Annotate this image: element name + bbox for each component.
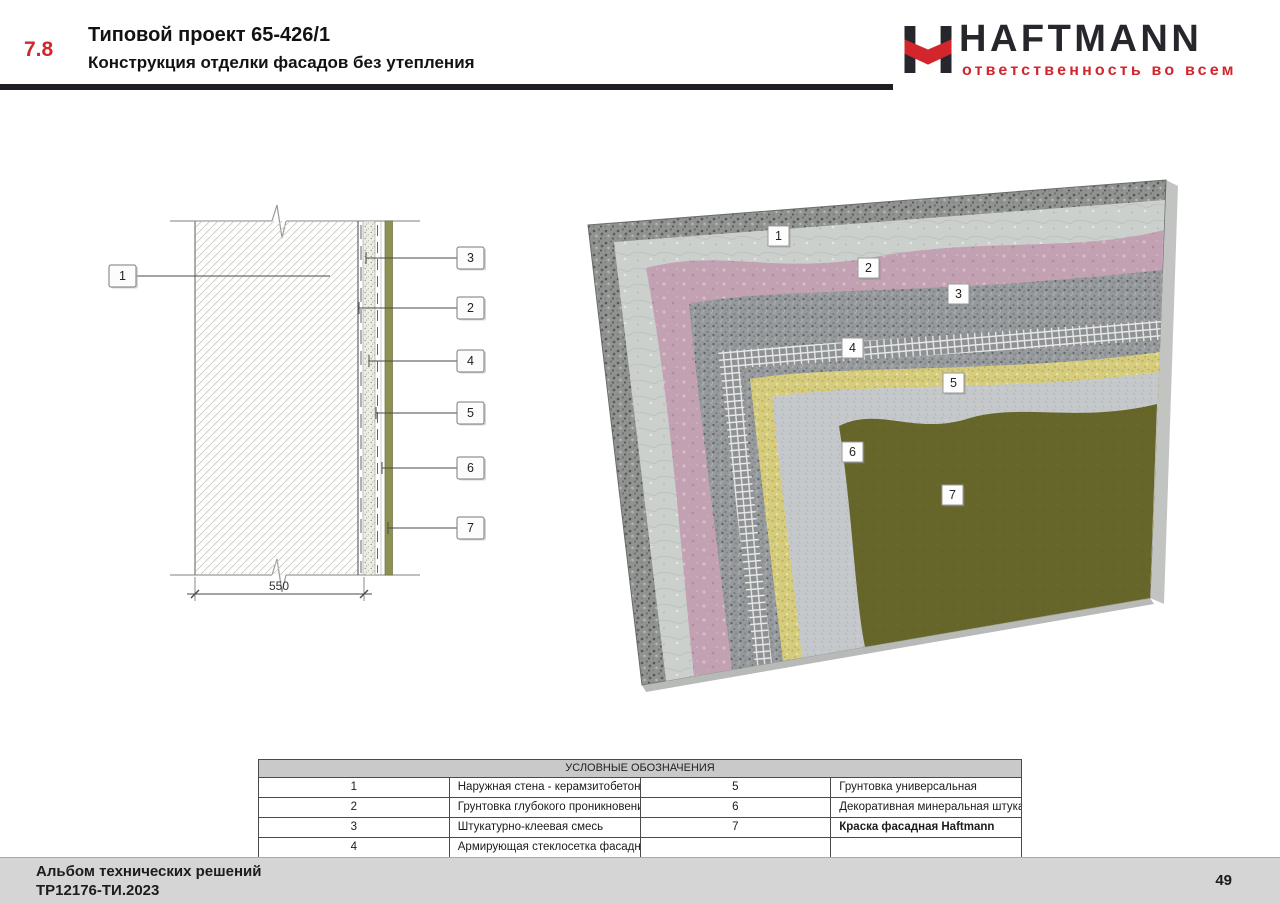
section-number: 7.8 <box>24 38 53 62</box>
legend-desc: Грунтовка универсальная <box>831 778 1022 798</box>
callout-4: 4 <box>457 350 486 374</box>
table-row: 2 Грунтовка глубокого проникновения / Ак… <box>259 798 1022 818</box>
legend-num: 3 <box>259 818 450 838</box>
callout-3d-1: 1 <box>768 226 791 248</box>
svg-text:4: 4 <box>467 354 474 368</box>
callout-3d-6: 6 <box>842 442 865 464</box>
table-row: 1 Наружная стена - керамзитобетонные пан… <box>259 778 1022 798</box>
svg-text:1: 1 <box>119 269 126 283</box>
legend-num <box>640 838 831 858</box>
footer-album-title: Альбом технических решений <box>36 863 261 880</box>
svg-text:5: 5 <box>950 376 957 390</box>
legend-desc-brand: Краска фасадная Haftmann <box>831 818 1022 838</box>
svg-text:7: 7 <box>949 488 956 502</box>
table-row: 4 Армирующая стеклосетка фасадная <box>259 838 1022 858</box>
svg-text:2: 2 <box>865 261 872 275</box>
page-title: Типовой проект 65-426/1 <box>88 24 330 47</box>
callout-7: 7 <box>457 517 486 541</box>
page-number: 49 <box>1215 872 1232 889</box>
legend-desc: Наружная стена - керамзитобетонные панел… <box>449 778 640 798</box>
svg-text:6: 6 <box>849 445 856 459</box>
page-footer: Альбом технических решений ТР12176-ТИ.20… <box>0 857 1280 904</box>
callout-5: 5 <box>457 402 486 426</box>
svg-text:3: 3 <box>467 251 474 265</box>
wall-hatch-area <box>195 221 358 575</box>
logo-tagline: ответственность во всем <box>962 62 1237 80</box>
legend-num: 1 <box>259 778 450 798</box>
legend-num: 5 <box>640 778 831 798</box>
svg-text:4: 4 <box>849 341 856 355</box>
svg-text:1: 1 <box>775 229 782 243</box>
legend-desc: Штукатурно-клеевая смесь <box>449 818 640 838</box>
legend-desc: Армирующая стеклосетка фасадная <box>449 838 640 858</box>
legend-desc: Декоративная минеральная штукатурка <box>831 798 1022 818</box>
callout-3d-3: 3 <box>948 284 971 306</box>
svg-text:7: 7 <box>467 521 474 535</box>
logo-brand-text: HAFTMANN <box>959 18 1202 61</box>
dimension-label: 550 <box>269 579 289 593</box>
page-subtitle: Конструкция отделки фасадов без утеплени… <box>88 53 475 73</box>
callout-6: 6 <box>457 457 486 481</box>
svg-text:2: 2 <box>467 301 474 315</box>
legend-num: 6 <box>640 798 831 818</box>
svg-text:5: 5 <box>467 406 474 420</box>
legend-table: УСЛОВНЫЕ ОБОЗНАЧЕНИЯ 1 Наружная стена - … <box>258 759 1022 858</box>
dimension-550: 550 <box>187 577 372 601</box>
legend-num: 7 <box>640 818 831 838</box>
paint-strip <box>385 221 393 575</box>
header-rule <box>0 84 893 90</box>
callout-3d-7: 7 <box>942 485 965 507</box>
legend-desc <box>831 838 1022 858</box>
callout-3d-2: 2 <box>858 258 881 280</box>
facade-layers-render: 1 2 3 4 5 <box>580 168 1190 703</box>
legend-header-row: УСЛОВНЫЕ ОБОЗНАЧЕНИЯ <box>259 760 1022 778</box>
callout-3d-4: 4 <box>842 338 865 360</box>
legend-num: 2 <box>259 798 450 818</box>
callout-2: 2 <box>457 297 486 321</box>
table-row: 3 Штукатурно-клеевая смесь 7 Краска фаса… <box>259 818 1022 838</box>
callout-1: 1 <box>109 265 138 289</box>
haftmann-h-logo-icon <box>904 26 952 73</box>
callout-3d-5: 5 <box>943 373 966 395</box>
svg-text:3: 3 <box>955 287 962 301</box>
legend-title: УСЛОВНЫЕ ОБОЗНАЧЕНИЯ <box>259 760 1022 778</box>
svg-text:6: 6 <box>467 461 474 475</box>
legend-num: 4 <box>259 838 450 858</box>
album-page: 7.8 Типовой проект 65-426/1 Конструкция … <box>0 0 1280 904</box>
wall-section-drawing: 1 3 2 4 5 <box>100 195 500 620</box>
legend-desc: Грунтовка глубокого проникновения / Акри… <box>449 798 640 818</box>
callout-3: 3 <box>457 247 486 271</box>
footer-document-code: ТР12176-ТИ.2023 <box>36 882 159 899</box>
finish-layers <box>361 221 393 575</box>
